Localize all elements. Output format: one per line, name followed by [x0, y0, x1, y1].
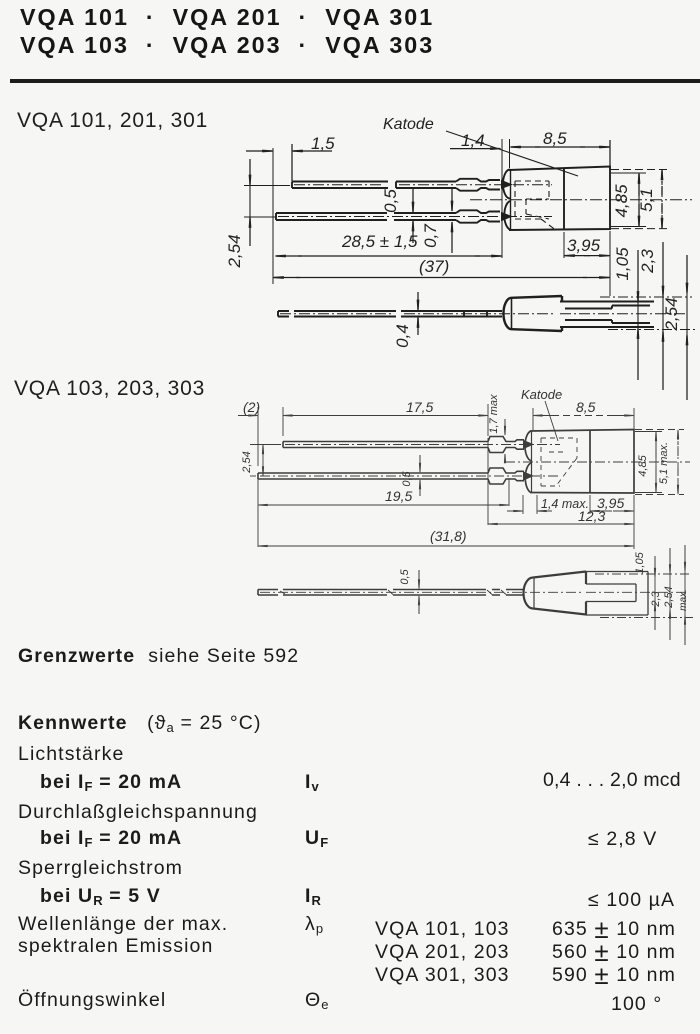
svg-text:2,54: 2,54 — [241, 451, 253, 473]
svg-text:0,5: 0,5 — [381, 189, 400, 213]
svg-text:28,5 ± 1,5: 28,5 ± 1,5 — [341, 232, 418, 251]
svg-text:8,5: 8,5 — [543, 129, 567, 148]
svg-text:0,5: 0,5 — [399, 568, 411, 584]
svg-text:3,95: 3,95 — [567, 236, 601, 255]
svg-text:1,05: 1,05 — [613, 247, 632, 281]
svg-text:(31,8): (31,8) — [430, 528, 467, 544]
svg-text:4,85: 4,85 — [637, 454, 649, 476]
svg-text:19,5: 19,5 — [385, 488, 412, 504]
svg-text:(37): (37) — [419, 257, 449, 276]
svg-text:8,5: 8,5 — [576, 399, 596, 415]
svg-text:1,5: 1,5 — [311, 134, 335, 153]
svg-text:2,3: 2,3 — [638, 249, 657, 274]
svg-text:max.: max. — [678, 589, 689, 611]
svg-text:12,3: 12,3 — [578, 508, 605, 524]
svg-text:2,54: 2,54 — [225, 234, 244, 268]
svg-text:4,85: 4,85 — [612, 184, 631, 218]
svg-text:5,1 max.: 5,1 max. — [658, 442, 670, 484]
svg-text:(2): (2) — [243, 399, 260, 415]
svg-text:Katode: Katode — [383, 116, 434, 133]
svg-text:1,4: 1,4 — [461, 131, 485, 150]
svg-text:0,7: 0,7 — [421, 224, 440, 248]
svg-text:Katode: Katode — [521, 387, 562, 402]
svg-text:1,05: 1,05 — [634, 551, 646, 573]
svg-text:5,1: 5,1 — [637, 188, 656, 212]
svg-text:2,54: 2,54 — [662, 297, 681, 331]
svg-text:2,3: 2,3 — [650, 590, 662, 607]
svg-text:17,5: 17,5 — [406, 399, 433, 415]
svg-text:1,7 max: 1,7 max — [488, 394, 500, 434]
svg-text:2,54: 2,54 — [663, 586, 675, 608]
svg-text:0,4: 0,4 — [393, 324, 412, 348]
svg-text:0,5: 0,5 — [401, 470, 413, 486]
